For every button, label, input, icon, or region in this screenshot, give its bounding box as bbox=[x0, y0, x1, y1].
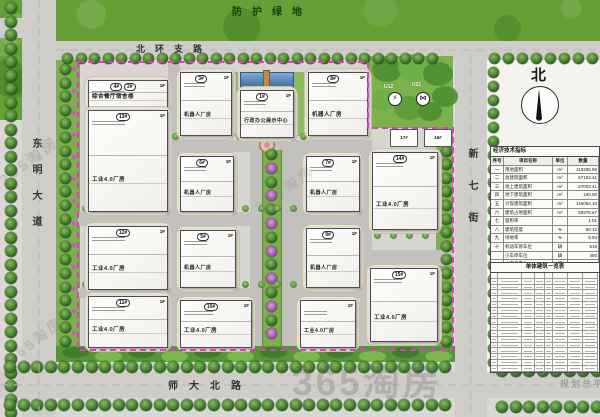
tree-icon bbox=[222, 399, 234, 411]
building-division-line bbox=[307, 196, 359, 197]
tree-icon bbox=[398, 399, 410, 411]
tree-icon bbox=[550, 401, 562, 413]
indicators-cell: 用地面积 bbox=[504, 166, 553, 175]
building-division-line bbox=[89, 254, 167, 255]
tree-icon bbox=[371, 361, 383, 373]
building-annotation bbox=[184, 81, 205, 87]
indicators-cell: m² bbox=[553, 191, 568, 200]
tree-icon bbox=[426, 399, 438, 411]
tree-icon bbox=[441, 159, 452, 170]
schedule-cell bbox=[498, 366, 522, 372]
tree-icon bbox=[4, 399, 16, 411]
tree-icon bbox=[154, 399, 166, 411]
tree-icon bbox=[140, 361, 152, 373]
building-division-line bbox=[241, 124, 293, 125]
indicators-cell bbox=[491, 252, 504, 261]
compass-label: 北 bbox=[531, 64, 548, 85]
tree-icon bbox=[72, 265, 76, 269]
tree-icon bbox=[5, 137, 17, 149]
tree-icon bbox=[5, 2, 17, 14]
indicators-cell: 三 bbox=[491, 183, 504, 192]
drawing-caption: 规划总平面 bbox=[560, 377, 600, 390]
tree-icon bbox=[72, 199, 76, 203]
tree-icon bbox=[103, 53, 114, 64]
indicators-table-title: 经济技术指标 bbox=[491, 147, 599, 157]
building-floor-label: 1F bbox=[286, 93, 291, 98]
building-annotation bbox=[304, 309, 327, 315]
indicators-cell: 118255.98 bbox=[568, 166, 599, 175]
tree-icon bbox=[5, 259, 17, 271]
tree-icon bbox=[242, 281, 249, 288]
tree-icon bbox=[564, 401, 576, 413]
tree-icon bbox=[5, 313, 17, 325]
tree-icon bbox=[5, 272, 17, 284]
building: 4#2#1F综合餐厅宿舍楼 bbox=[88, 80, 168, 108]
tree-icon bbox=[587, 53, 598, 64]
tree-icon bbox=[266, 177, 277, 188]
tree-icon bbox=[266, 246, 277, 257]
tree-icon bbox=[249, 361, 261, 373]
tree-icon bbox=[126, 399, 138, 411]
tree-icon bbox=[266, 149, 277, 160]
tree-icon bbox=[72, 399, 84, 411]
tree-icon bbox=[167, 361, 179, 373]
tree-icon bbox=[86, 361, 98, 373]
indicators-cell: m² bbox=[553, 166, 568, 175]
tree-icon bbox=[358, 399, 370, 411]
buffer-bush bbox=[392, 347, 419, 358]
building-name: 机器人厂房 bbox=[184, 189, 212, 196]
indicators-cell: 建筑占地面积 bbox=[504, 209, 553, 218]
tree-icon bbox=[441, 186, 452, 197]
indicators-cell: % bbox=[553, 234, 568, 243]
tree-icon bbox=[266, 163, 277, 174]
tree-icon bbox=[545, 53, 556, 64]
building-division-line bbox=[89, 155, 167, 156]
indicators-cell: 二 bbox=[491, 174, 504, 183]
tree-icon bbox=[573, 53, 584, 64]
tree-icon bbox=[181, 399, 193, 411]
building-annotation bbox=[374, 277, 402, 283]
tree-icon bbox=[441, 173, 452, 184]
indicators-cell: 十 bbox=[491, 243, 504, 252]
tree-icon bbox=[276, 361, 288, 373]
building-name: 工业4.0厂房 bbox=[92, 175, 125, 183]
tree-icon bbox=[5, 326, 17, 338]
indicators-cell: 总建筑面积 bbox=[504, 174, 553, 183]
tree-icon bbox=[265, 53, 276, 64]
tree-icon bbox=[441, 268, 452, 279]
tree-icon bbox=[72, 361, 84, 373]
building-floor-label: 1F bbox=[224, 75, 229, 80]
tree-icon bbox=[317, 399, 329, 411]
building-division-line bbox=[89, 100, 167, 101]
schedule-cell bbox=[535, 366, 545, 372]
tree-icon bbox=[99, 361, 111, 373]
tree-icon bbox=[62, 53, 73, 64]
building-division-line bbox=[181, 181, 233, 182]
indicators-cell: 绿地率 bbox=[504, 234, 553, 243]
tree-icon bbox=[5, 232, 17, 244]
indicators-cell: 九 bbox=[491, 234, 504, 243]
building-division-line bbox=[309, 100, 367, 101]
building-floor-label: 1F bbox=[160, 229, 165, 234]
building-name: 工业4.0厂房 bbox=[92, 264, 125, 272]
building-division-line bbox=[89, 319, 167, 320]
indicators-cell: 118064.10 bbox=[568, 200, 599, 209]
building-name: 机器人厂房 bbox=[312, 110, 342, 118]
building: 10#1F工业4.0厂房 bbox=[180, 300, 252, 348]
tree-icon bbox=[60, 105, 71, 116]
building: 15#1F工业4.0厂房 bbox=[370, 268, 438, 342]
building-floor-label: 1F bbox=[160, 299, 165, 304]
utility-code: U21 bbox=[412, 82, 421, 88]
tree-icon bbox=[45, 399, 57, 411]
indicators-cell: 67003.41 bbox=[568, 183, 599, 192]
tree-icon bbox=[412, 399, 424, 411]
schedule-cell bbox=[568, 366, 583, 372]
building-floor-label: 1F bbox=[160, 113, 165, 118]
tree-icon bbox=[317, 361, 329, 373]
schedule-cell bbox=[491, 366, 498, 372]
indicators-cell: 67153.41 bbox=[568, 174, 599, 183]
label-protective-green: 防护绿地 bbox=[232, 3, 312, 18]
building-name: 工业4.0厂房 bbox=[92, 325, 125, 333]
tree-icon bbox=[72, 287, 76, 291]
tree-icon bbox=[72, 133, 76, 137]
tree-icon bbox=[5, 299, 17, 311]
tree-icon bbox=[60, 91, 71, 102]
tree-icon bbox=[303, 361, 315, 373]
tree-icon bbox=[242, 205, 249, 212]
tree-icon bbox=[373, 53, 384, 64]
building-division-line bbox=[181, 118, 231, 119]
building: 6#1F机器人厂房 bbox=[180, 156, 234, 212]
building-name: 机器人厂房 bbox=[310, 264, 338, 271]
tree-icon bbox=[330, 361, 342, 373]
tree-icon bbox=[517, 53, 528, 64]
tree-icon bbox=[194, 361, 206, 373]
tree-icon bbox=[359, 53, 370, 64]
tree-icon bbox=[249, 399, 261, 411]
tree-icon bbox=[537, 401, 549, 413]
tree-icon bbox=[503, 53, 514, 64]
tree-icon bbox=[278, 53, 289, 64]
power-substation-icon: ⚡ bbox=[388, 92, 402, 106]
building-division-line bbox=[307, 255, 359, 256]
tree-icon bbox=[72, 67, 76, 71]
tree-icon bbox=[441, 336, 452, 347]
indicators-cell: 机动车停车位 bbox=[504, 243, 553, 252]
buffer-bush bbox=[62, 347, 89, 358]
indicators-header-cell: 数量 bbox=[568, 157, 599, 166]
tree-icon bbox=[18, 399, 30, 411]
indicators-cell: 地上建筑面积 bbox=[504, 183, 553, 192]
building-annotation bbox=[184, 165, 206, 171]
building-division-line bbox=[181, 256, 235, 257]
building: 12#1F工业4.0厂房 bbox=[88, 226, 168, 290]
tree-icon bbox=[305, 53, 316, 64]
tree-icon bbox=[58, 361, 70, 373]
building-number: 2# bbox=[124, 83, 136, 91]
tree-icon bbox=[5, 380, 17, 392]
tree-icon bbox=[86, 399, 98, 411]
building-division-line bbox=[301, 334, 355, 335]
tree-icon bbox=[60, 282, 71, 293]
building-floor-label: 1F bbox=[430, 271, 435, 276]
tree-icon bbox=[5, 191, 17, 203]
tree-icon bbox=[60, 159, 71, 170]
schedule-cell bbox=[545, 366, 553, 372]
tree-icon bbox=[72, 221, 76, 225]
building: 8#1F机器人厂房 bbox=[308, 72, 368, 136]
tree-icon bbox=[60, 295, 71, 306]
tree-icon bbox=[76, 53, 87, 64]
tree-icon bbox=[258, 205, 265, 212]
indicators-cell bbox=[553, 217, 568, 226]
tree-icon bbox=[5, 218, 17, 230]
tree-icon bbox=[60, 118, 71, 129]
tree-icon bbox=[5, 205, 17, 217]
building-division-line bbox=[373, 208, 437, 209]
indicators-header-cell: 项目名称 bbox=[504, 157, 553, 166]
compass-icon bbox=[521, 86, 559, 124]
park-tree-canopy bbox=[423, 62, 453, 86]
tree-icon bbox=[5, 29, 17, 41]
building-name: 行政办公展示中心 bbox=[244, 117, 288, 124]
tree-icon bbox=[72, 309, 76, 313]
building-small: 17# bbox=[390, 129, 418, 147]
building-floor-label: 1F bbox=[160, 83, 165, 88]
building-name: 机器人厂房 bbox=[184, 264, 212, 271]
building-annotation bbox=[184, 239, 207, 245]
indicators-cell: 七 bbox=[491, 217, 504, 226]
tree-icon bbox=[292, 53, 303, 64]
tree-icon bbox=[60, 336, 71, 347]
tree-icon bbox=[194, 399, 206, 411]
tree-icon bbox=[5, 43, 17, 55]
building-division-line bbox=[89, 183, 167, 184]
tree-icon bbox=[577, 401, 589, 413]
tree-icon bbox=[276, 399, 288, 411]
building-floor-label: 1F bbox=[360, 75, 365, 80]
indicators-cell: 八 bbox=[491, 226, 504, 235]
tree-icon bbox=[126, 361, 138, 373]
tree-icon bbox=[385, 361, 397, 373]
tree-icon bbox=[5, 56, 17, 68]
substation-code: U12 bbox=[384, 84, 393, 90]
tree-icon bbox=[72, 111, 76, 115]
tree-icon bbox=[154, 361, 166, 373]
building-name: 综合餐厅宿舍楼 bbox=[92, 92, 134, 100]
tree-icon bbox=[266, 190, 277, 201]
indicators-cell: % bbox=[553, 226, 568, 235]
building-annotation bbox=[376, 161, 403, 167]
tree-icon bbox=[441, 322, 452, 333]
building-division-line bbox=[301, 321, 355, 322]
tree-icon bbox=[72, 177, 76, 181]
tree-icon bbox=[211, 53, 222, 64]
tree-icon bbox=[5, 178, 17, 190]
schedule-table: 单体建筑一览表 bbox=[490, 262, 600, 373]
tree-icon bbox=[116, 53, 127, 64]
building-division-line bbox=[241, 111, 293, 112]
tree-icon bbox=[330, 399, 342, 411]
tree-icon bbox=[89, 53, 100, 64]
tree-icon bbox=[60, 268, 71, 279]
tree-icon bbox=[99, 399, 111, 411]
building-name: 机器人厂房 bbox=[184, 111, 212, 118]
tree-icon bbox=[441, 227, 452, 238]
indicators-header-cell: 单位 bbox=[553, 157, 568, 166]
indicators-cell: 辆 bbox=[553, 252, 568, 261]
tree-icon bbox=[332, 53, 343, 64]
tree-icon bbox=[531, 53, 542, 64]
tree-icon bbox=[591, 401, 600, 413]
tree-icon bbox=[262, 361, 274, 373]
tree-icon bbox=[439, 361, 451, 373]
tree-icon bbox=[523, 401, 535, 413]
building: 5#1F机器人厂房 bbox=[180, 230, 236, 288]
tree-icon bbox=[72, 331, 76, 335]
building: 3#1F机器人厂房 bbox=[180, 72, 232, 136]
tree-icon bbox=[167, 399, 179, 411]
indicators-cell: 容积率 bbox=[504, 217, 553, 226]
tree-icon bbox=[398, 361, 410, 373]
tree-icon bbox=[5, 151, 17, 163]
schedule-table-title: 单体建筑一览表 bbox=[491, 263, 599, 273]
tree-icon bbox=[344, 361, 356, 373]
tree-icon bbox=[441, 241, 452, 252]
tree-icon bbox=[113, 399, 125, 411]
tree-icon bbox=[5, 70, 17, 82]
building-name: 工业4.0厂房 bbox=[376, 200, 409, 208]
tree-icon bbox=[266, 218, 277, 229]
building-division-line bbox=[309, 118, 367, 119]
building-floor-label: 1F bbox=[352, 159, 357, 164]
label-east-road: 新七街 bbox=[464, 148, 479, 244]
tree-icon bbox=[488, 122, 499, 133]
schedule-cell bbox=[522, 366, 535, 372]
tree-icon bbox=[60, 227, 71, 238]
building-division-line bbox=[181, 100, 231, 101]
tree-icon bbox=[60, 214, 71, 225]
tree-icon bbox=[72, 243, 76, 247]
label-north-road: 北环支路 bbox=[136, 42, 212, 55]
building-division-line bbox=[181, 271, 235, 272]
building-division-line bbox=[89, 272, 167, 273]
tree-icon bbox=[58, 399, 70, 411]
building-floor-label: 1F bbox=[430, 155, 435, 160]
indicators-cell: 计容建筑面积 bbox=[504, 200, 553, 209]
tree-icon bbox=[60, 241, 71, 252]
building-division-line bbox=[181, 334, 251, 335]
buffer-bush bbox=[260, 347, 287, 358]
tree-icon bbox=[4, 361, 16, 373]
tree-icon bbox=[319, 53, 330, 64]
building-division-line bbox=[307, 271, 359, 272]
tree-icon bbox=[346, 53, 357, 64]
building-floor-label: 1F bbox=[352, 231, 357, 236]
tree-icon bbox=[60, 200, 71, 211]
indicators-cell: 五 bbox=[491, 200, 504, 209]
tree-icon bbox=[488, 67, 499, 78]
label-west-road: 东明大道 bbox=[28, 138, 43, 242]
tree-icon bbox=[31, 399, 43, 411]
tree-icon bbox=[290, 399, 302, 411]
tree-icon bbox=[208, 399, 220, 411]
indicators-cell: 地下建筑面积 bbox=[504, 191, 553, 200]
building-floor-label: 1F bbox=[226, 159, 231, 164]
tree-icon bbox=[238, 53, 249, 64]
tree-icon bbox=[441, 200, 452, 211]
tree-icon bbox=[266, 315, 277, 326]
building: 13#1F工业4.0厂房 bbox=[88, 110, 168, 212]
building-annotation bbox=[184, 309, 213, 315]
tree-icon bbox=[140, 399, 152, 411]
indicators-table: 经济技术指标 序号项目名称单位数量一用地面积m²118255.98二总建筑面积m… bbox=[490, 146, 600, 270]
tree-icon bbox=[60, 146, 71, 157]
tree-icon bbox=[441, 254, 452, 265]
tree-icon bbox=[235, 399, 247, 411]
tree-icon bbox=[72, 155, 76, 159]
indicators-cell: 建筑密度 bbox=[504, 226, 553, 235]
tree-icon bbox=[5, 110, 17, 122]
tree-icon bbox=[5, 164, 17, 176]
tree-icon bbox=[266, 287, 277, 298]
schedule-cell bbox=[583, 366, 598, 372]
building-floor-label: 1F bbox=[348, 303, 353, 308]
tree-icon bbox=[371, 399, 383, 411]
tree-icon bbox=[181, 361, 193, 373]
tree-icon bbox=[559, 53, 570, 64]
indicators-cell: m² bbox=[553, 174, 568, 183]
site-plan-canvas: 4#2#1F综合餐厅宿舍楼13#1F工业4.0厂房3#1F机器人厂房1#1F行政… bbox=[0, 0, 600, 417]
tree-icon bbox=[427, 53, 438, 64]
building-annotation bbox=[92, 235, 125, 241]
tree-icon bbox=[60, 309, 71, 320]
tree-icon bbox=[488, 108, 499, 119]
building-division-line bbox=[373, 186, 437, 187]
tree-icon bbox=[266, 259, 277, 270]
indicators-cell: m² bbox=[553, 183, 568, 192]
building: 14#1F工业4.0厂房 bbox=[372, 152, 438, 230]
tree-icon bbox=[5, 16, 17, 28]
building-division-line bbox=[371, 301, 437, 302]
tree-icon bbox=[358, 361, 370, 373]
tree-icon bbox=[60, 254, 71, 265]
tree-icon bbox=[72, 89, 76, 93]
tree-icon bbox=[439, 399, 451, 411]
tree-icon bbox=[441, 309, 452, 320]
building-division-line bbox=[89, 333, 167, 334]
indicators-cell: 59378.67 bbox=[568, 209, 599, 218]
tree-icon bbox=[258, 281, 265, 288]
tree-icon bbox=[290, 361, 302, 373]
tree-icon bbox=[208, 361, 220, 373]
tree-icon bbox=[18, 361, 30, 373]
tree-icon bbox=[426, 361, 438, 373]
tree-icon bbox=[386, 53, 397, 64]
tree-icon bbox=[266, 301, 277, 312]
building-name: 工业4.0厂房 bbox=[374, 313, 407, 321]
indicators-cell: 150.00 bbox=[568, 191, 599, 200]
tree-icon bbox=[5, 245, 17, 257]
tree-icon bbox=[113, 361, 125, 373]
building: 7#1F机器人厂房 bbox=[306, 156, 360, 212]
tree-icon bbox=[60, 132, 71, 143]
building-division-line bbox=[307, 181, 359, 182]
